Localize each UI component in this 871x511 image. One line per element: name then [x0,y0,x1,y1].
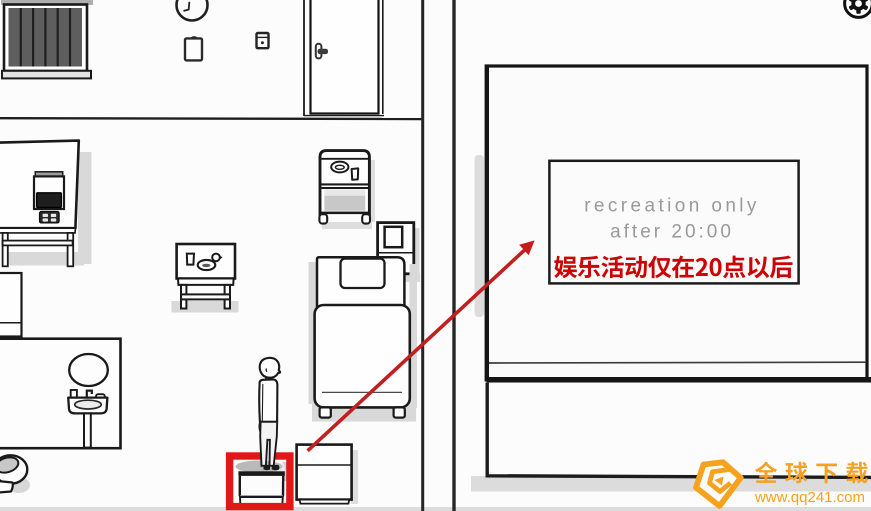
svg-text:www.qq241.com: www.qq241.com [754,489,865,506]
svg-text:recreation only: recreation only [584,196,760,217]
svg-text:after 20:00: after 20:00 [610,222,734,243]
